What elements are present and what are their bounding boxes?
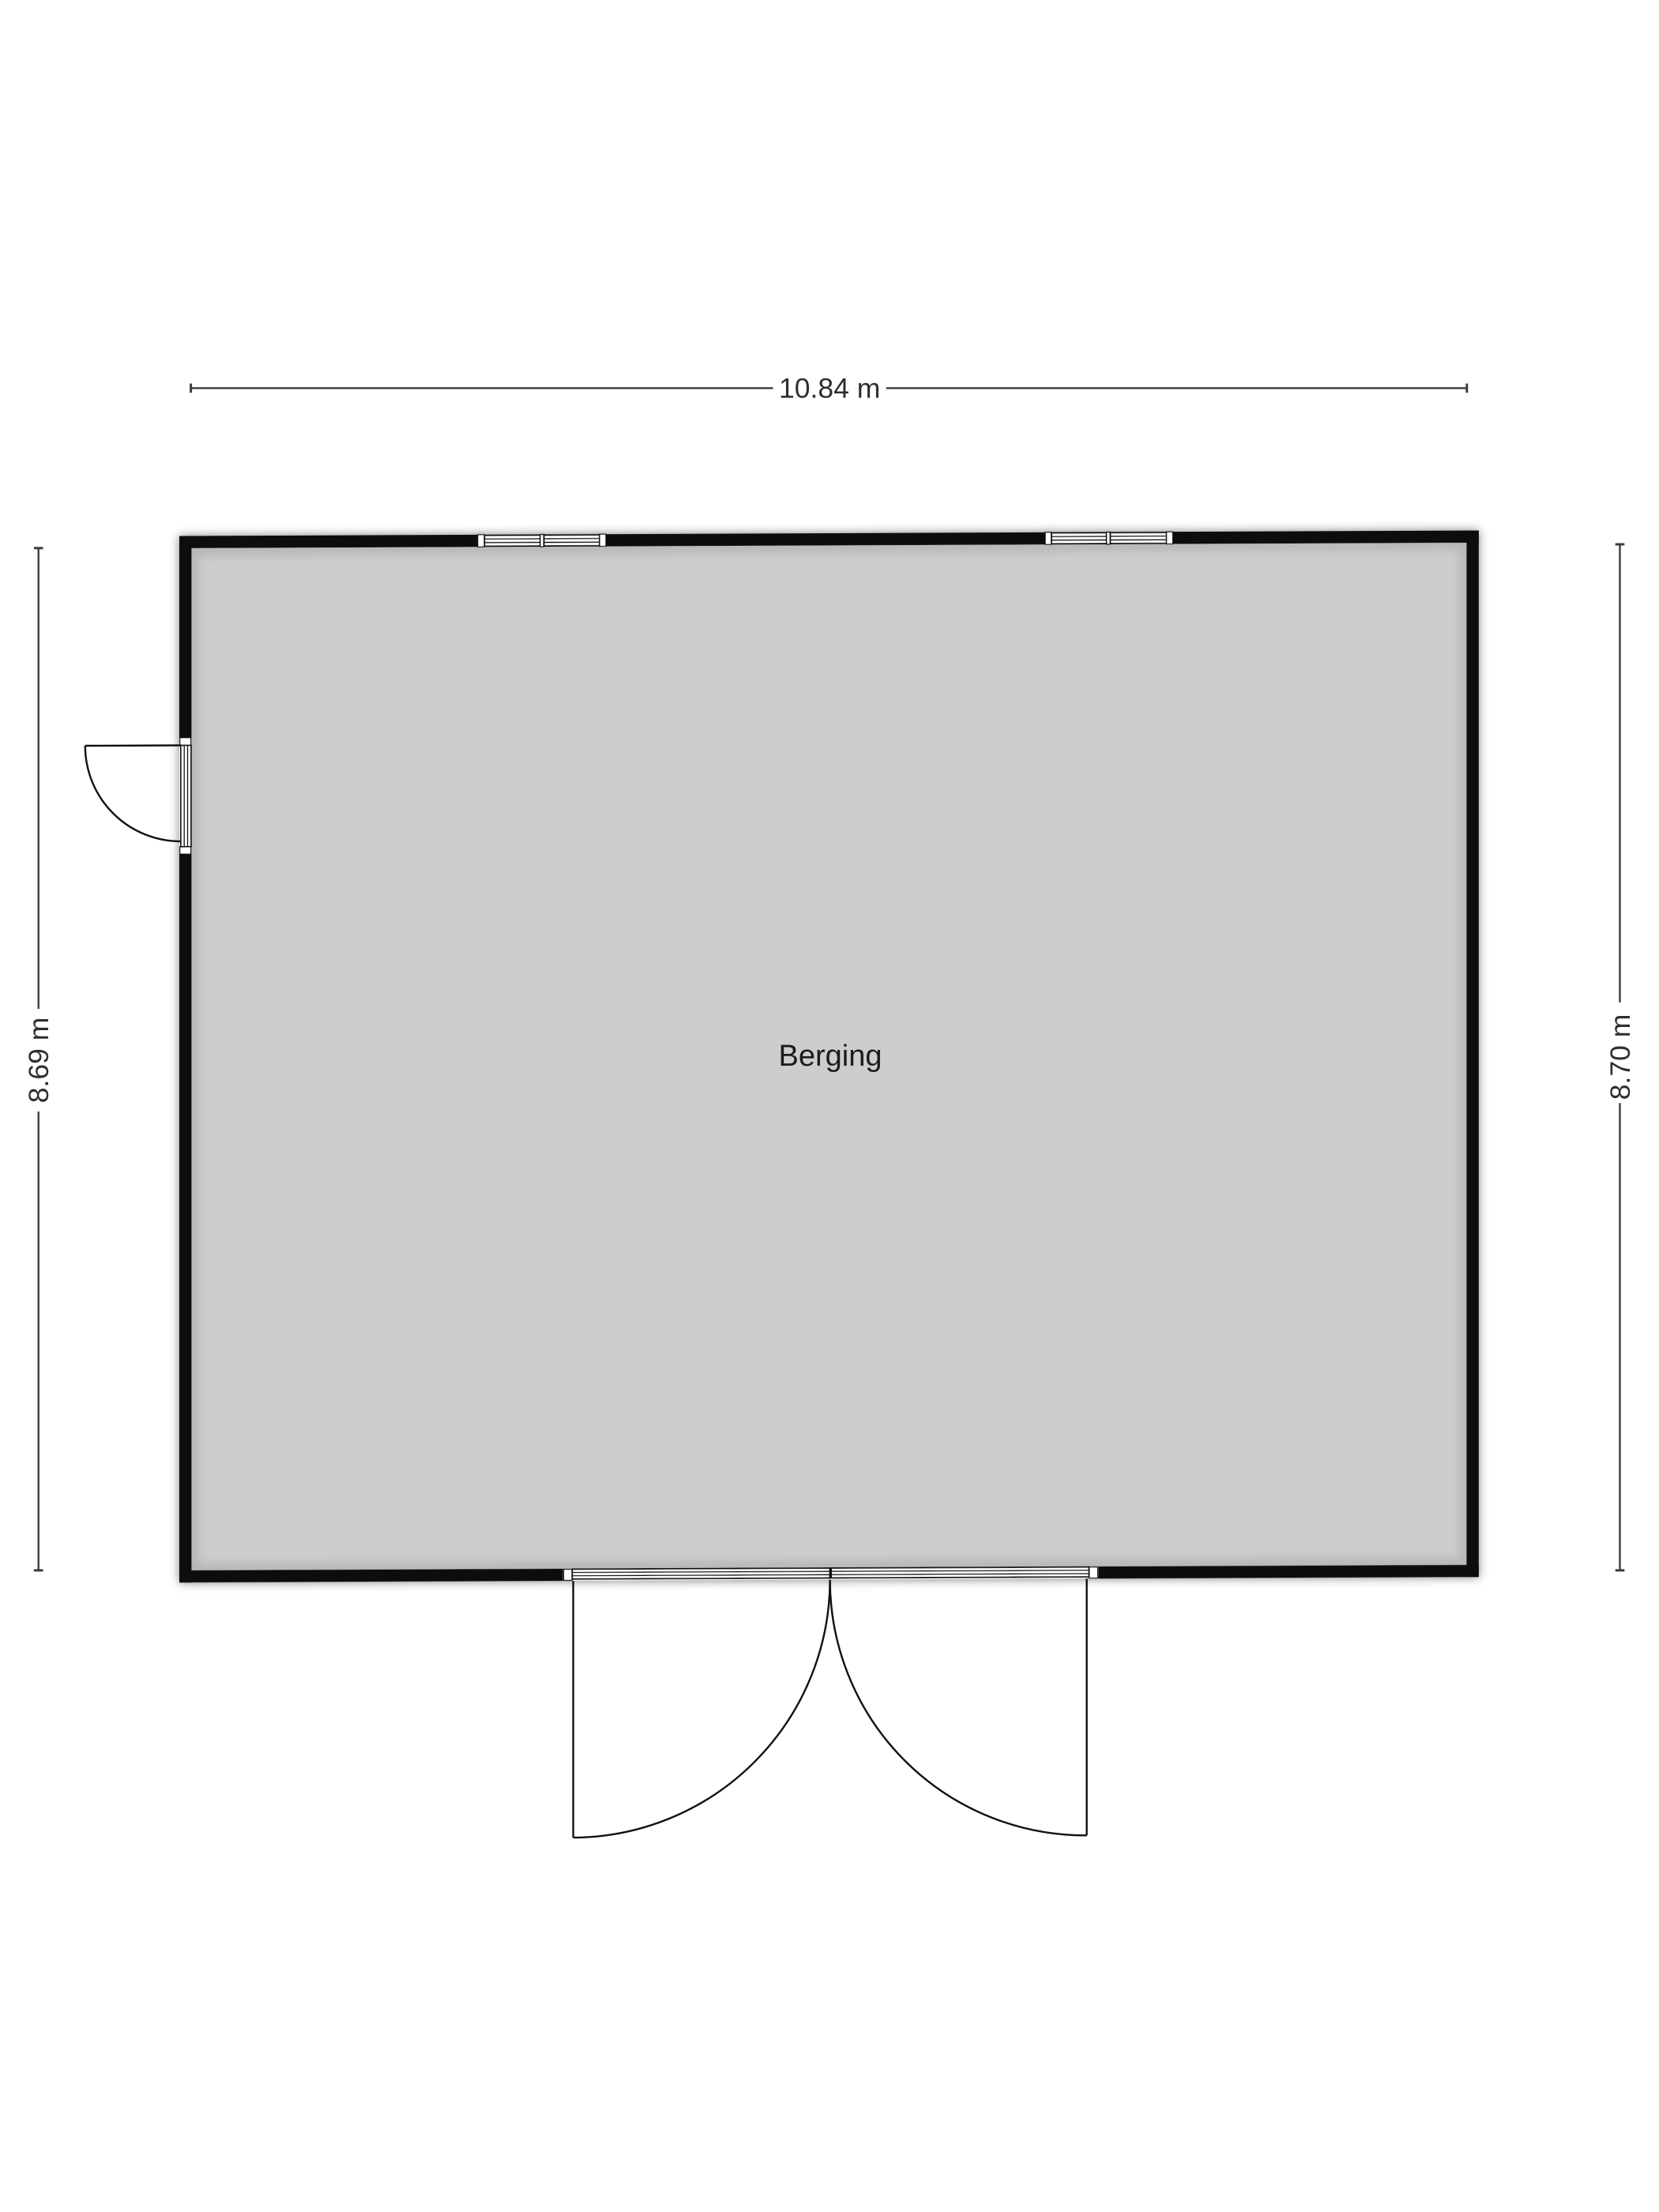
svg-text:8.69 m: 8.69 m	[23, 1018, 55, 1104]
svg-text:8.70 m: 8.70 m	[1604, 1014, 1636, 1100]
svg-text:Berging: Berging	[779, 1040, 882, 1073]
svg-text:10.84 m: 10.84 m	[779, 373, 880, 404]
